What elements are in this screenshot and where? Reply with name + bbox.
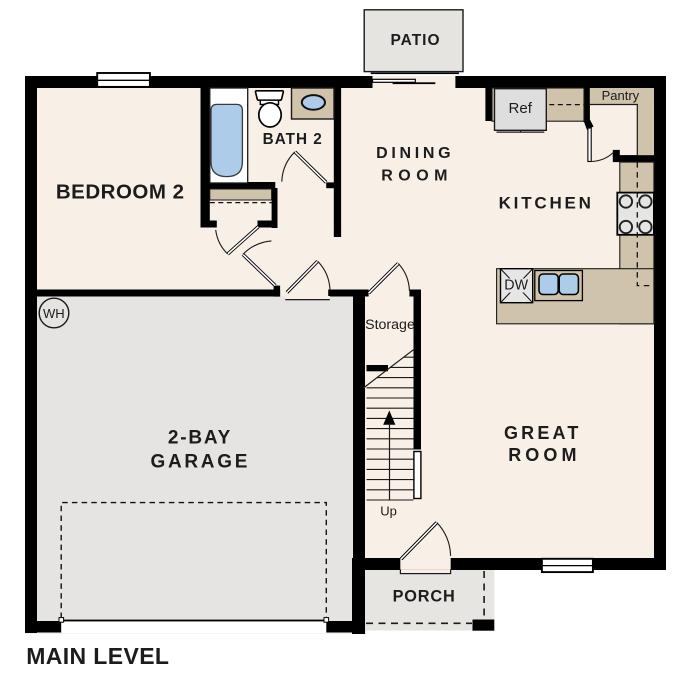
svg-text:Up: Up	[380, 504, 397, 519]
svg-text:DINING: DINING	[376, 145, 454, 162]
svg-text:GARAGE: GARAGE	[150, 452, 250, 473]
svg-text:WH: WH	[43, 306, 65, 321]
svg-text:MAIN LEVEL: MAIN LEVEL	[26, 643, 169, 669]
svg-text:2-BAY: 2-BAY	[168, 428, 232, 449]
svg-text:PATIO: PATIO	[390, 32, 440, 49]
svg-text:DW: DW	[504, 278, 528, 294]
svg-text:ROOM: ROOM	[381, 167, 453, 184]
svg-text:Storage: Storage	[365, 317, 415, 333]
svg-text:BATH 2: BATH 2	[263, 131, 323, 148]
svg-text:ROOM: ROOM	[508, 445, 580, 465]
svg-text:BEDROOM 2: BEDROOM 2	[56, 180, 185, 203]
svg-text:PORCH: PORCH	[393, 588, 456, 606]
svg-text:GREAT: GREAT	[504, 423, 582, 443]
svg-text:KITCHEN: KITCHEN	[499, 193, 594, 212]
svg-text:Ref: Ref	[509, 100, 533, 117]
svg-text:Pantry: Pantry	[602, 88, 640, 103]
